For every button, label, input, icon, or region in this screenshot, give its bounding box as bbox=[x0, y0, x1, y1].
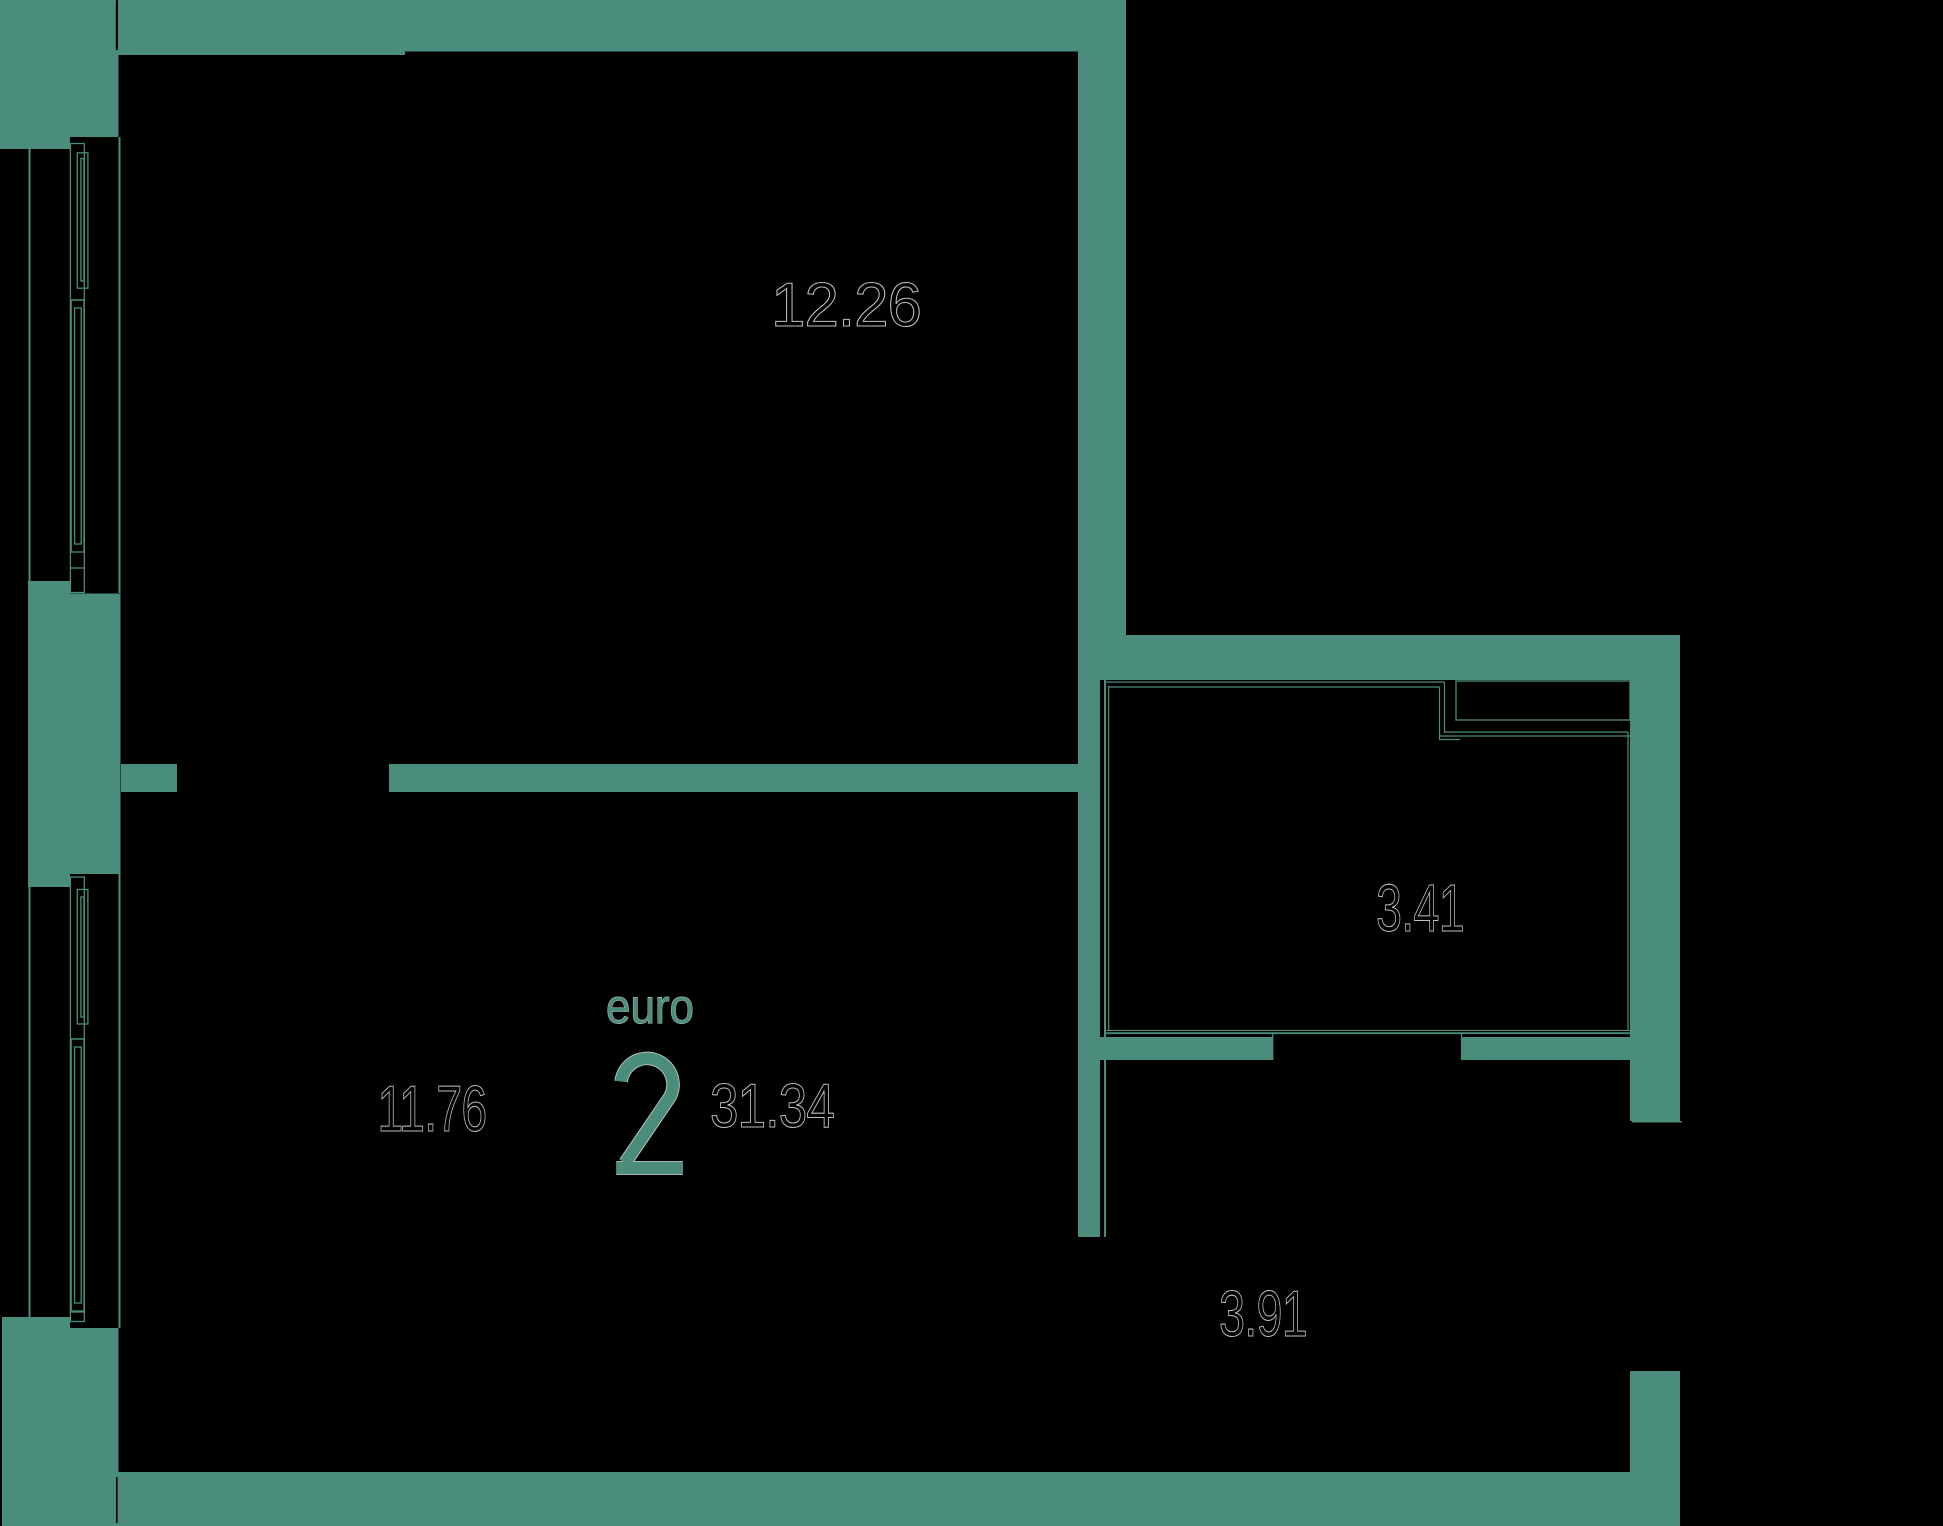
svg-text:3.41: 3.41 bbox=[1376, 871, 1464, 946]
svg-text:3.91: 3.91 bbox=[1219, 1277, 1307, 1350]
svg-text:31.34: 31.34 bbox=[710, 1072, 834, 1141]
svg-text:euro: euro bbox=[606, 981, 694, 1034]
svg-text:11.76: 11.76 bbox=[378, 1072, 487, 1145]
svg-text:12.26: 12.26 bbox=[771, 271, 921, 340]
